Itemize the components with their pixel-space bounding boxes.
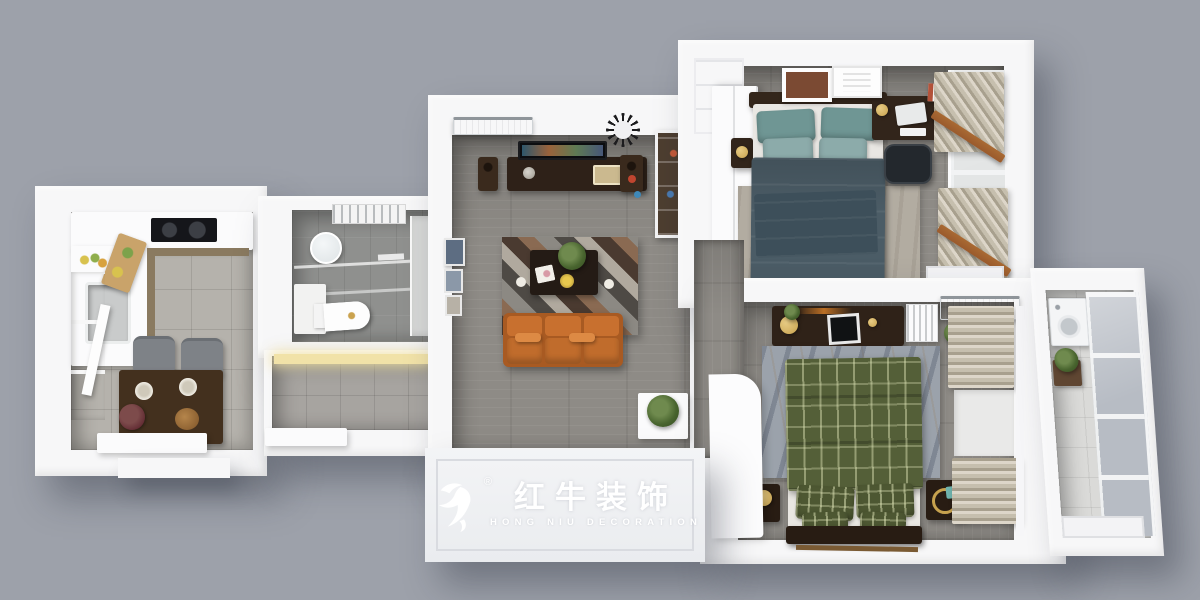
entry-platform [265, 428, 347, 446]
air-conditioner [453, 117, 533, 135]
wall-frame [444, 269, 463, 293]
bed-bench [796, 545, 918, 552]
window-frame-edge [1016, 306, 1024, 536]
sofa-arm-pillow [515, 333, 541, 342]
throw-blanket [754, 190, 878, 258]
decor-vase [523, 167, 535, 179]
candle [868, 318, 877, 327]
nightstand [731, 138, 753, 168]
fruit-bowl [77, 250, 107, 270]
balcony [1030, 268, 1164, 556]
coaster [516, 277, 526, 287]
pillow-teal [820, 107, 877, 141]
floorplan-render-scene: ® 红牛装饰 HONG NIU DECORATION [0, 0, 1200, 600]
picture-frame-brown [782, 68, 832, 102]
book-row [906, 304, 938, 342]
console-plant [784, 304, 800, 320]
flat-tv [518, 141, 607, 160]
table-lamp [736, 146, 748, 158]
wall-frame [445, 295, 462, 316]
table-plant [558, 242, 586, 270]
cooktop [151, 218, 217, 242]
open-door-panel [709, 374, 764, 539]
toilet [323, 300, 371, 331]
plaid-duvet [785, 357, 923, 491]
coffee-table [530, 250, 598, 295]
coaster [604, 279, 614, 289]
sofa-arm-pillow [569, 333, 595, 342]
desk-lamp [876, 104, 888, 116]
window-bedding [954, 390, 1014, 456]
round-mirror [310, 232, 342, 264]
sofa [503, 313, 623, 367]
logo-panel: ® 红牛装饰 HONG NIU DECORATION [425, 448, 705, 562]
speaker-left [478, 157, 498, 191]
kitchen-outer-step [118, 458, 230, 478]
headboard [786, 526, 922, 544]
desk-chair [884, 144, 932, 184]
brand-logo: ® 红牛装饰 HONG NIU DECORATION [428, 478, 702, 532]
bed-second [786, 358, 922, 544]
media-console [772, 306, 904, 346]
wall-clock [606, 113, 640, 147]
fruit-dish [560, 274, 574, 288]
picture-frame-art [832, 66, 882, 98]
laptop [895, 102, 927, 126]
logo-panel-frame: ® 红牛装饰 HONG NIU DECORATION [436, 459, 694, 551]
speaker-right [620, 155, 643, 192]
counter-trim-h [153, 248, 249, 256]
decor-tray [593, 165, 623, 185]
floor-plant [647, 395, 679, 427]
counter-trim-v [147, 248, 155, 348]
bed-master [747, 92, 889, 292]
bull-swoosh-icon: ® [428, 478, 482, 532]
tv-screen [522, 145, 603, 156]
photo-frame [827, 313, 861, 345]
living-room [428, 95, 710, 467]
bread-basket [175, 408, 199, 430]
plate [179, 378, 197, 396]
kitchen-step [97, 433, 207, 453]
brand-name-chinese: 红牛装饰 [514, 482, 678, 515]
curtain-top-2 [948, 306, 1014, 388]
ceiling-vent [332, 204, 406, 224]
flower-vase [119, 404, 145, 430]
registered-mark: ® [484, 476, 492, 488]
keyboard [900, 128, 926, 136]
planter-box [638, 393, 688, 439]
brand-name-english: HONG NIU DECORATION [490, 517, 702, 528]
washing-machine [1048, 298, 1089, 346]
kitchen-dining-room [35, 186, 267, 476]
wall-frame [444, 238, 465, 266]
curtain-bottom-2 [952, 458, 1020, 524]
cabinet-light-strip [274, 354, 430, 364]
toy-item [634, 191, 641, 198]
toy-item [628, 175, 636, 183]
balcony-sill [1061, 516, 1145, 538]
plate [135, 382, 153, 400]
dessert-tray [535, 264, 556, 283]
